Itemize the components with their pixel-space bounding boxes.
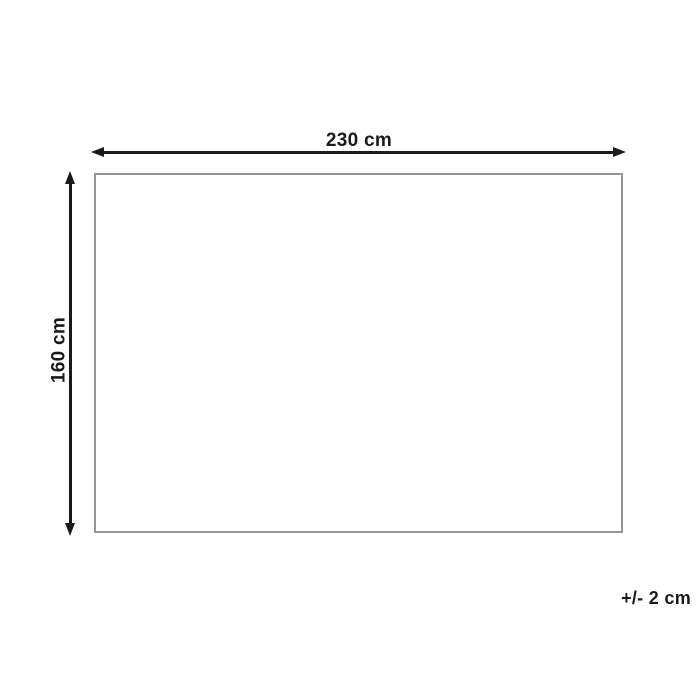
dimension-diagram: 230 cm 160 cm +/- 2 cm [0,0,700,700]
arrow-down-icon [65,523,75,536]
height-dimension-label: 160 cm [50,317,69,383]
width-dimension-label: 230 cm [326,131,392,150]
product-outline-rect [94,173,623,533]
tolerance-label: +/- 2 cm [621,589,691,607]
width-dimension-line [101,151,617,154]
arrow-right-icon [613,147,626,157]
